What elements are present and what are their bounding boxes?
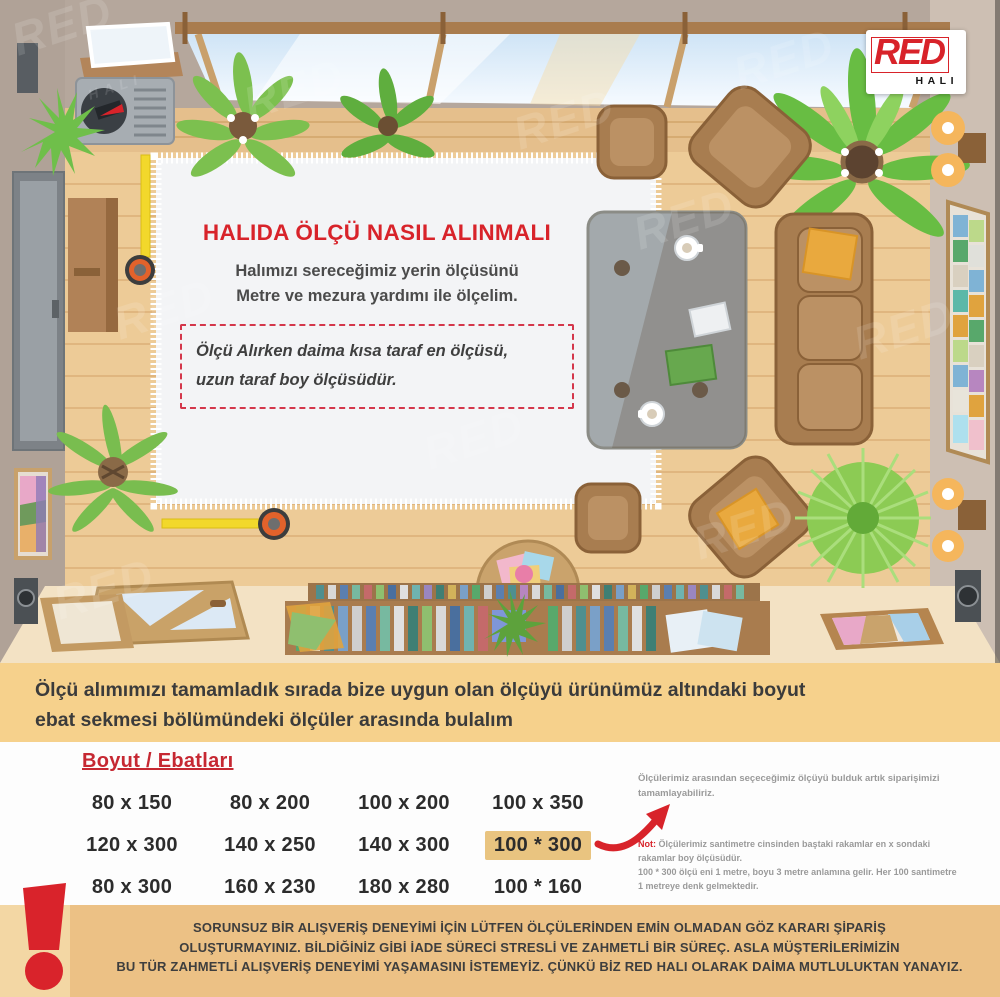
exclamation-icon (14, 858, 84, 992)
notes-note: Not: Ölçülerimiz santimetre cinsinden ba… (638, 838, 957, 894)
carpet-body-line2: Metre ve mezura yardımı ile ölçelim. (236, 287, 518, 305)
size-option: 80 x 150 (62, 782, 202, 824)
carpet-text-block: HALIDA ÖLÇÜ NASIL ALINMALI Halımızı sere… (168, 220, 586, 409)
green-book (666, 345, 716, 385)
size-option-highlighted: 100 * 300 (470, 824, 606, 866)
sizes-heading: Boyut / Ebatları (82, 750, 234, 773)
size-option: 80 x 200 (202, 782, 338, 824)
right-speaker (955, 570, 981, 622)
size-option: 140 x 300 (338, 824, 470, 866)
curved-arrow-icon (594, 800, 684, 860)
carpet-note-line1: Ölçü Alırken daima kısa taraf en ölçüsü, (196, 342, 508, 360)
armchair-bottom-left (576, 484, 640, 552)
bookshelf (285, 583, 770, 657)
intro-line2: ebat sekmesi bölümündeki ölçüler arasınd… (35, 709, 513, 731)
carpet-body: Halımızı sereceğimiz yerin ölçüsünü Metr… (168, 259, 586, 309)
gallery-frame (16, 470, 50, 558)
carpet-dashed-note: Ölçü Alırken daima kısa taraf en ölçüsü,… (180, 324, 574, 409)
size-grid: 80 x 150 80 x 200 100 x 200 100 x 350 12… (62, 782, 606, 908)
intro-band: Ölçü alımımızı tamamladık sırada bize uy… (0, 663, 1000, 742)
logo-hali-text: HALI (916, 75, 959, 87)
size-option: 100 x 350 (470, 782, 606, 824)
size-option: 100 x 200 (338, 782, 470, 824)
intro-line1: Ölçü alımımızı tamamladık sırada bize uy… (35, 679, 805, 701)
carpet-note-line2: uzun taraf boy ölçüsüdür. (196, 371, 397, 389)
logo-red-text: RED (874, 32, 944, 72)
size-option: 140 x 250 (202, 824, 338, 866)
size-option: 180 x 280 (338, 866, 470, 908)
notes-block: Ölçülerimiz arasından seçeceğimiz ölçüyü… (638, 772, 968, 801)
size-option: 100 * 160 (470, 866, 606, 908)
orange-pillow (803, 229, 857, 280)
warning-text: SORUNSUZ BİR ALIŞVERİŞ DENEYİMİ İÇİN LÜT… (85, 918, 994, 977)
warning-band: SORUNSUZ BİR ALIŞVERİŞ DENEYİMİ İÇİN LÜT… (0, 905, 1000, 997)
curtain-beam (175, 22, 950, 34)
notes-paragraph: Ölçülerimiz arasından seçeceğimiz ölçüyü… (638, 772, 968, 801)
edge-shadow (995, 0, 1000, 663)
size-option: 160 x 230 (202, 866, 338, 908)
carpet-title: HALIDA ÖLÇÜ NASIL ALINMALI (168, 220, 586, 246)
red-hali-logo: RED HALI (866, 30, 966, 94)
left-door (13, 172, 64, 450)
infographic: RED RED RED RED RED RED RED RED RED HALI… (0, 0, 1000, 997)
carpet-body-line1: Halımızı sereceğimiz yerin ölçüsünü (235, 262, 518, 280)
left-speaker (14, 578, 38, 624)
size-sheet: Boyut / Ebatları 80 x 150 80 x 200 100 x… (0, 742, 1000, 905)
floor-painting (820, 608, 944, 650)
